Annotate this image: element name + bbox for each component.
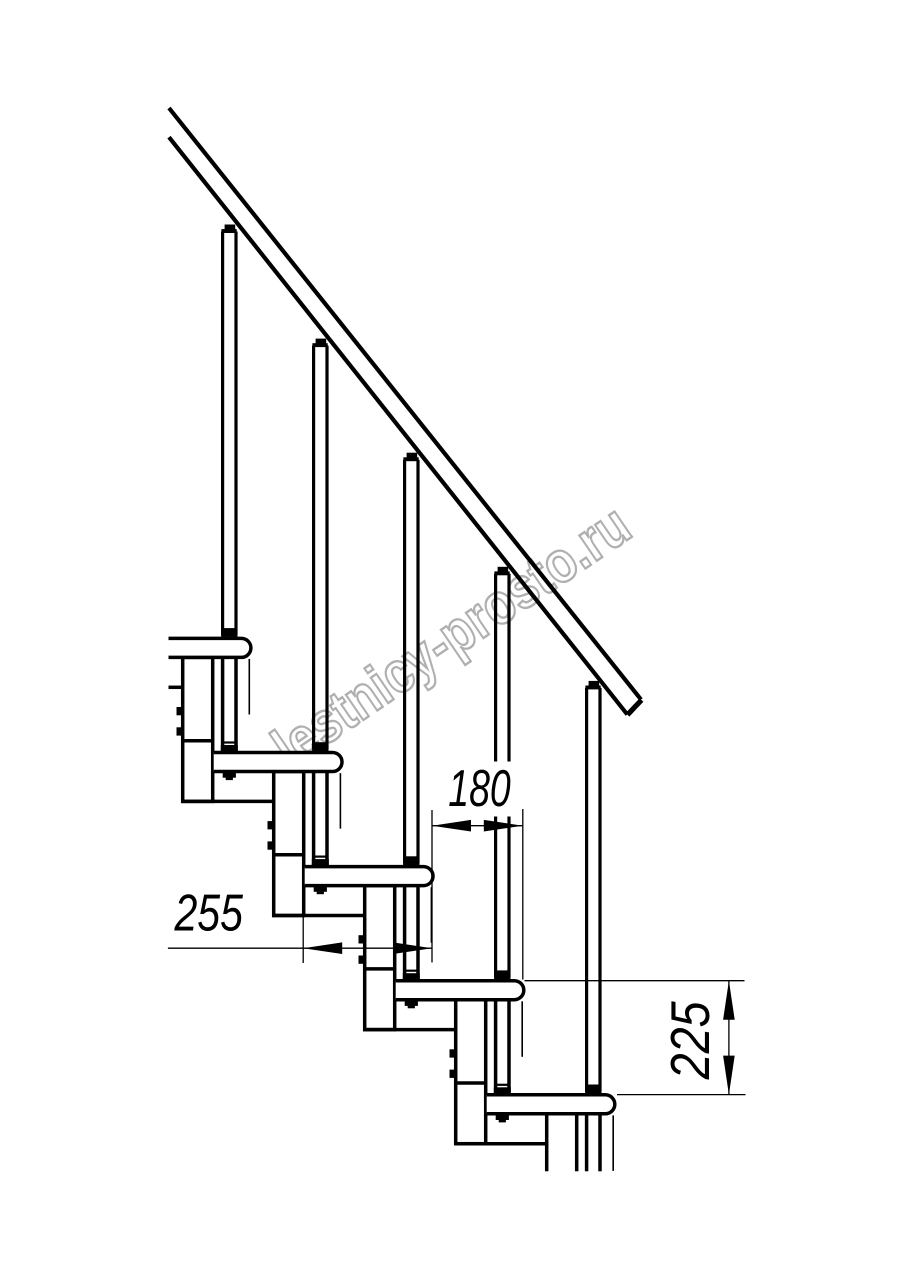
svg-text:255: 255 bbox=[174, 884, 244, 942]
svg-text:225: 225 bbox=[659, 1001, 720, 1080]
svg-text:180: 180 bbox=[448, 759, 510, 818]
